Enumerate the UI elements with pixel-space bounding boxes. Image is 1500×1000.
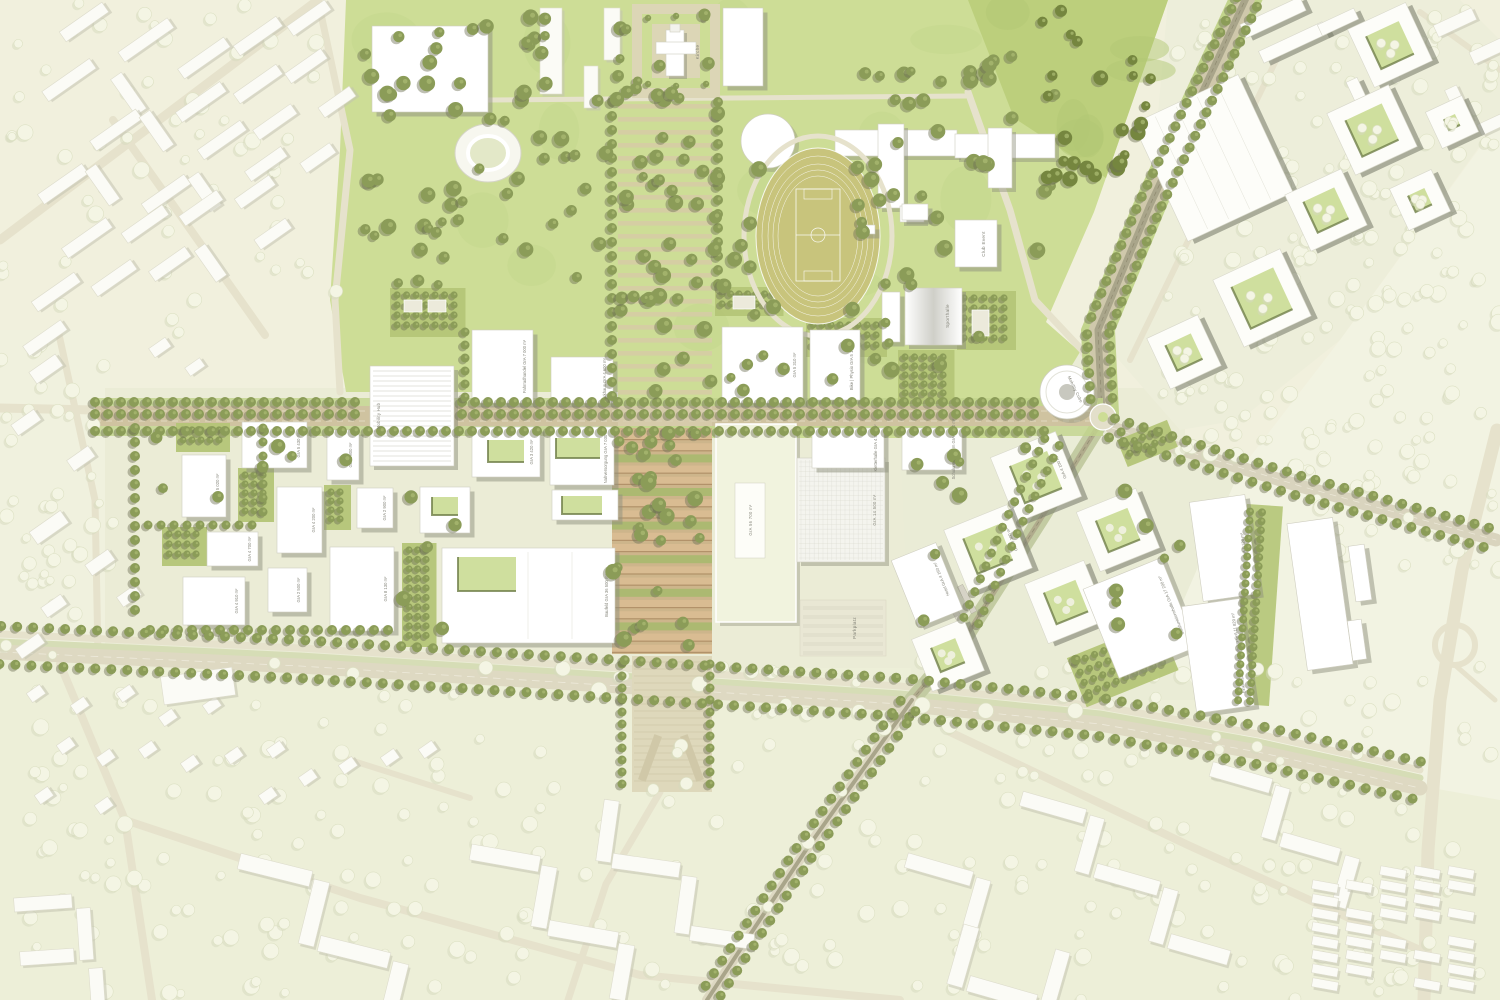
building [723,8,768,91]
masterplan-canvas: GrA 4 100 m²GrA 3 300 m²GrA 5 020 m²GrA … [0,0,1500,1000]
building [372,26,493,117]
building: GrA 4 700 m² [207,532,263,571]
building [902,204,933,225]
hedge-block [238,468,274,522]
building [955,220,1002,272]
building-label: Fahrradhandel GrA 7 000 m² [522,339,527,393]
hedge-block [162,527,207,566]
building: GrA 5 020 m² [182,455,231,522]
road [0,408,95,410]
hedge-block [390,288,466,337]
school-building [988,128,1012,188]
building-label: GrA 2 900 m² [382,495,387,521]
building-label: GrA 3 420 m² [529,439,534,465]
building-label: GrA 5 310 m² [792,352,797,378]
building [552,490,623,525]
building: GrA 8 130 m² [330,547,399,636]
building: GrA 2 500 m² [268,568,312,617]
building-label: GrA 4 910 m² [234,588,239,614]
sporthalle-building [905,288,962,345]
map-label: GrA 14 500 m² [872,494,877,525]
building: GrA 4 200 m² [277,487,327,558]
building-label: Nahversorgung GrA 7 030 m² [603,428,608,483]
building-label: GrA 8 130 m² [383,576,388,602]
building [89,967,108,1000]
map-label: Parkplatz [852,617,857,639]
tree-row [615,660,627,791]
masterplan-map: GrA 4 100 m²GrA 3 300 m²GrA 5 020 m²GrA … [0,0,1500,1000]
building: Bike | Physio GrA 5 170 m² [810,330,865,405]
sport-court [733,296,755,309]
hedge-block [324,485,351,530]
building-label: GrA 2 500 m² [296,577,301,603]
map-label: Club Event [981,231,986,257]
tree-row [703,660,715,791]
building: GrA 2 900 m² [357,488,398,533]
sport-court [428,300,446,312]
tree-row [141,521,257,532]
building-label: GrA 4 200 m² [311,507,316,533]
building-label: GrA 4 700 m² [247,536,252,562]
map-label: Kirche [695,44,700,59]
hedge-block [898,350,955,404]
map-label: GrA 56 700 m² [748,504,753,535]
building: GrA 4 910 m² [183,577,250,630]
map-label: Sporthalle [945,304,950,328]
parking-lot [800,600,886,656]
building: GrA 5 310 m² [722,327,808,408]
sport-court [404,300,422,312]
building: Baufeld GrA 36 500 m² [442,548,620,648]
building: Fahrradhandel GrA 7 000 m² [472,330,538,408]
map-label: Mobility Hub [376,402,381,429]
